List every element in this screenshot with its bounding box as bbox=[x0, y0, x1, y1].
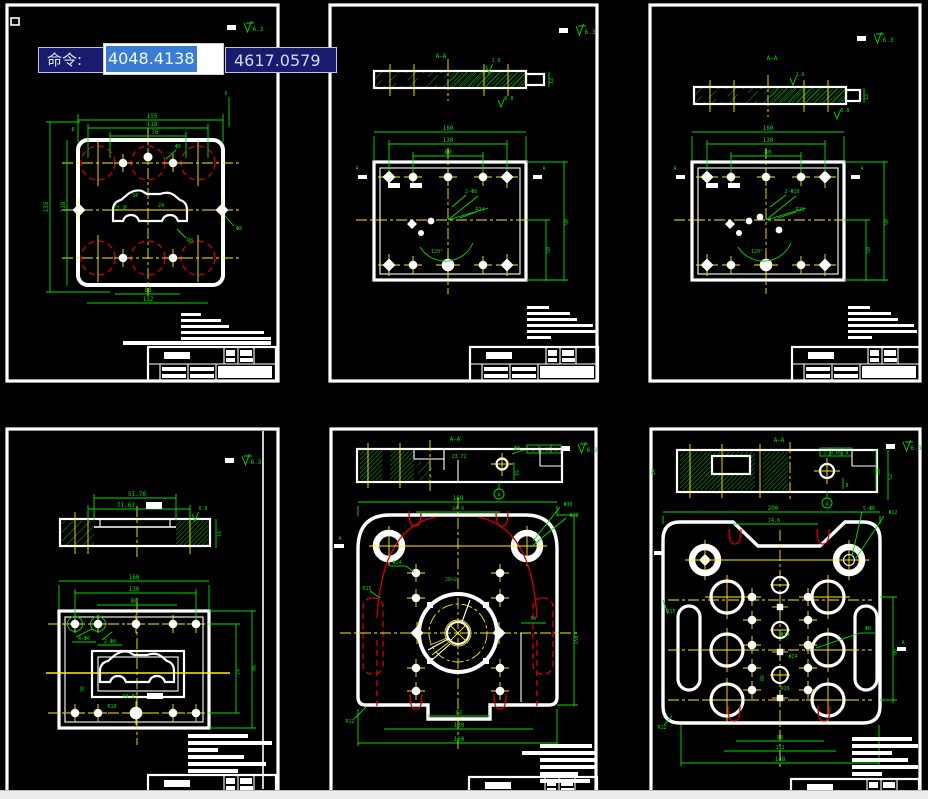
svg-text:130: 130 bbox=[129, 586, 140, 593]
svg-text:R8: R8 bbox=[187, 238, 193, 244]
svg-text:6.3: 6.3 bbox=[253, 26, 264, 33]
svg-text:R26: R26 bbox=[795, 207, 804, 213]
sheet-6-roughness-mark: 6.3 bbox=[886, 440, 922, 452]
svg-text:24: 24 bbox=[158, 203, 164, 209]
svg-text:160: 160 bbox=[443, 125, 454, 132]
svg-text:96: 96 bbox=[252, 665, 258, 671]
svg-text:150: 150 bbox=[574, 635, 580, 644]
svg-text:155: 155 bbox=[147, 113, 158, 120]
sheet-3-notes bbox=[848, 306, 917, 339]
sheet-2-roughness-mark: 6.3 bbox=[559, 24, 596, 36]
svg-text:A: A bbox=[355, 166, 358, 172]
sheet-4-section-view bbox=[60, 506, 210, 560]
svg-text:R15: R15 bbox=[362, 586, 371, 592]
autocad-viewport: 6.3 bbox=[0, 0, 928, 799]
sheet-3: 6.3 A—A 12 1.6 0.8 160 130 80 2-Φ10 R26 … bbox=[650, 5, 920, 381]
svg-text:A: A bbox=[825, 502, 828, 508]
svg-text:130: 130 bbox=[763, 137, 774, 144]
window-bottom-strip bbox=[0, 790, 928, 799]
svg-text:51.78: 51.78 bbox=[128, 491, 146, 498]
sheet-1-notes bbox=[123, 313, 271, 345]
svg-text:34: 34 bbox=[530, 616, 536, 622]
svg-text:135: 135 bbox=[43, 201, 50, 212]
svg-text:71.63: 71.63 bbox=[117, 502, 135, 509]
dynamic-input-x-field[interactable]: 4048.4138 bbox=[104, 44, 223, 74]
side-slot-left bbox=[678, 606, 700, 690]
sheet-1-roughness-mark: 6.3 bbox=[227, 21, 264, 33]
svg-text:74: 74 bbox=[236, 669, 242, 675]
svg-text:62: 62 bbox=[456, 710, 462, 716]
svg-text:Φ8: Φ8 bbox=[514, 446, 520, 452]
section-label: A—A bbox=[436, 53, 447, 60]
svg-text:52: 52 bbox=[888, 474, 894, 480]
centerlines bbox=[62, 128, 240, 296]
sheet-2-section-view bbox=[374, 59, 526, 101]
svg-text:12: 12 bbox=[864, 94, 870, 100]
svg-text:5-Φ8: 5-Φ8 bbox=[863, 506, 875, 512]
sheet-2: 6.3 A—A 12 1.6 0.8 160 130 80 2-Φ8 R24 1… bbox=[330, 5, 598, 381]
sheet-6: 6.3 A—A ◎ 0.05 A 24 30 52 8 A bbox=[651, 429, 922, 799]
svg-text:2-Φ8: 2-Φ8 bbox=[104, 639, 116, 645]
sheet-4: 6.3 51.78 71.63 16 0.8 bbox=[7, 429, 278, 799]
pickbox-cursor bbox=[11, 18, 19, 25]
svg-text:80: 80 bbox=[130, 598, 138, 605]
svg-text:16: 16 bbox=[217, 531, 223, 537]
sheet-1-dimensions: 155 118 76 8 6 135 118 88 132 34 24 R8 Φ… bbox=[43, 91, 242, 303]
section-label: A—A bbox=[774, 437, 785, 444]
sheet-5: 6.3 A—A ◎ 0.05 A 23.72 Φ8 15 A bbox=[331, 429, 598, 799]
svg-text:6: 6 bbox=[224, 91, 227, 97]
svg-text:Φ6: Φ6 bbox=[175, 144, 181, 150]
svg-text:130: 130 bbox=[454, 722, 465, 729]
svg-text:24: 24 bbox=[651, 469, 657, 475]
svg-text:6.3: 6.3 bbox=[587, 447, 598, 454]
svg-text:0.8: 0.8 bbox=[504, 96, 513, 102]
svg-text:90: 90 bbox=[564, 219, 570, 225]
svg-text:R12: R12 bbox=[345, 719, 354, 725]
sheet-3-section-view bbox=[694, 75, 846, 117]
svg-text:6.3: 6.3 bbox=[585, 29, 596, 36]
svg-text:6.3: 6.3 bbox=[911, 445, 922, 452]
svg-text:Φ14: Φ14 bbox=[780, 632, 789, 638]
svg-text:2-Φ10: 2-Φ10 bbox=[784, 189, 799, 195]
svg-text:R15: R15 bbox=[666, 609, 675, 615]
svg-text:120°: 120° bbox=[431, 249, 443, 255]
svg-text:50: 50 bbox=[546, 247, 552, 253]
svg-text:A: A bbox=[673, 166, 676, 172]
cavity-frame bbox=[92, 651, 184, 697]
sheet-5-roughness-mark: 6.3 bbox=[561, 442, 598, 454]
svg-text:A: A bbox=[338, 536, 341, 542]
sheet-4-main-view bbox=[46, 598, 230, 745]
sheet-6-section-view: 24 30 52 8 bbox=[651, 442, 894, 500]
svg-text:59.87: 59.87 bbox=[122, 694, 137, 700]
svg-text:Φ24: Φ24 bbox=[788, 654, 797, 660]
svg-text:A: A bbox=[845, 451, 848, 457]
sheet-1-title-block bbox=[148, 347, 276, 381]
svg-text:80: 80 bbox=[764, 149, 772, 156]
svg-text:R12: R12 bbox=[657, 725, 666, 731]
sheet-2-main-view bbox=[356, 148, 544, 294]
svg-text:Φ12: Φ12 bbox=[888, 510, 897, 516]
svg-text:50: 50 bbox=[866, 247, 872, 253]
sheet-3-title-block bbox=[792, 347, 920, 381]
svg-text:Φ30: Φ30 bbox=[563, 502, 572, 508]
svg-text:120°: 120° bbox=[751, 249, 763, 255]
svg-text:Φ8: Φ8 bbox=[236, 226, 242, 232]
svg-text:24.9: 24.9 bbox=[452, 506, 464, 512]
svg-text:Φ20: Φ20 bbox=[569, 513, 578, 519]
sheet-3-main-view bbox=[674, 148, 862, 294]
svg-text:36: 36 bbox=[80, 686, 86, 692]
sheet-6-datum: A bbox=[822, 491, 832, 508]
svg-text:160: 160 bbox=[763, 125, 774, 132]
dynamic-input-y-field[interactable]: 4617.0579 bbox=[225, 47, 337, 73]
svg-text:200: 200 bbox=[768, 505, 779, 512]
svg-text:88: 88 bbox=[777, 735, 783, 741]
svg-text:168: 168 bbox=[453, 495, 464, 502]
svg-text:0.8: 0.8 bbox=[840, 108, 849, 114]
command-prompt-label: 命令: bbox=[38, 47, 104, 73]
svg-text:90: 90 bbox=[884, 219, 890, 225]
section-label: A—A bbox=[767, 55, 778, 62]
svg-text:74.8: 74.8 bbox=[768, 518, 780, 524]
svg-text:0.8: 0.8 bbox=[198, 506, 207, 512]
svg-text:86: 86 bbox=[760, 675, 766, 681]
sheet-5-section-arrow: A bbox=[334, 536, 344, 548]
svg-text:15: 15 bbox=[515, 470, 521, 476]
svg-text:A: A bbox=[497, 493, 500, 499]
svg-text:112: 112 bbox=[775, 745, 784, 751]
sheet-3-roughness-mark: 6.3 bbox=[857, 32, 894, 44]
svg-text:30: 30 bbox=[876, 469, 882, 475]
svg-text:12: 12 bbox=[549, 78, 555, 84]
svg-text:◎: ◎ bbox=[823, 451, 826, 457]
sheet-2-notes bbox=[527, 306, 596, 339]
sheet-5-datum: A bbox=[494, 482, 504, 499]
svg-text:118: 118 bbox=[60, 201, 67, 212]
svg-text:12: 12 bbox=[115, 205, 121, 211]
svg-text:34: 34 bbox=[132, 193, 138, 199]
svg-text:A: A bbox=[542, 166, 545, 172]
svg-text:4-Φ6: 4-Φ6 bbox=[78, 636, 90, 642]
sheet-6-notes bbox=[852, 737, 918, 776]
svg-text:160: 160 bbox=[454, 736, 465, 743]
svg-text:6.3: 6.3 bbox=[251, 459, 262, 466]
sheet-2-title-block bbox=[470, 347, 598, 381]
svg-text:0.05: 0.05 bbox=[830, 451, 842, 457]
sheet-2-dimensions: 160 130 80 2-Φ8 R24 120° 50 90 bbox=[374, 125, 570, 281]
svg-text:R24: R24 bbox=[475, 207, 484, 213]
svg-text:80: 80 bbox=[444, 149, 452, 156]
svg-text:23.72: 23.72 bbox=[451, 454, 466, 460]
sheet-6-main-view bbox=[663, 522, 880, 770]
svg-text:148: 148 bbox=[775, 756, 786, 763]
dynamic-input-x-value[interactable]: 4048.4138 bbox=[106, 46, 197, 72]
svg-text:8: 8 bbox=[845, 483, 848, 489]
svg-text:Φ8: Φ8 bbox=[865, 626, 871, 632]
sheet-6-dimensions: 200 74.8 5-Φ8 Φ12 R15 R12 88 112 148 96 … bbox=[657, 505, 899, 766]
svg-text:A: A bbox=[860, 166, 863, 172]
drawing-canvas: 6.3 bbox=[0, 0, 928, 799]
svg-text:20: 20 bbox=[123, 205, 129, 211]
section-label: A—A bbox=[450, 436, 461, 443]
svg-text:1.6: 1.6 bbox=[491, 58, 500, 64]
sheet-4-notes bbox=[188, 734, 272, 773]
svg-text:R10: R10 bbox=[107, 704, 116, 710]
svg-text:160: 160 bbox=[129, 574, 140, 581]
sheet-1-main-view bbox=[62, 128, 240, 296]
svg-text:88: 88 bbox=[144, 287, 152, 294]
svg-text:Φ14: Φ14 bbox=[392, 560, 401, 566]
sheet-3-dimensions: 160 130 80 2-Φ10 R26 120° 50 90 bbox=[692, 125, 890, 281]
svg-text:2-Φ8: 2-Φ8 bbox=[465, 189, 477, 195]
sheet-4-roughness-mark: 6.3 bbox=[225, 454, 262, 466]
svg-text:R19: R19 bbox=[780, 686, 789, 692]
svg-text:132: 132 bbox=[143, 296, 154, 303]
svg-text:20×2: 20×2 bbox=[445, 577, 457, 583]
svg-text:118: 118 bbox=[147, 121, 158, 128]
plate-outline bbox=[78, 140, 223, 285]
svg-text:130: 130 bbox=[443, 137, 454, 144]
svg-text:8: 8 bbox=[71, 127, 74, 133]
svg-text:A: A bbox=[901, 640, 904, 646]
side-slot-right bbox=[855, 606, 877, 690]
svg-text:76: 76 bbox=[151, 129, 159, 136]
svg-text:1.6: 1.6 bbox=[795, 72, 804, 78]
svg-text:6.3: 6.3 bbox=[883, 37, 894, 44]
